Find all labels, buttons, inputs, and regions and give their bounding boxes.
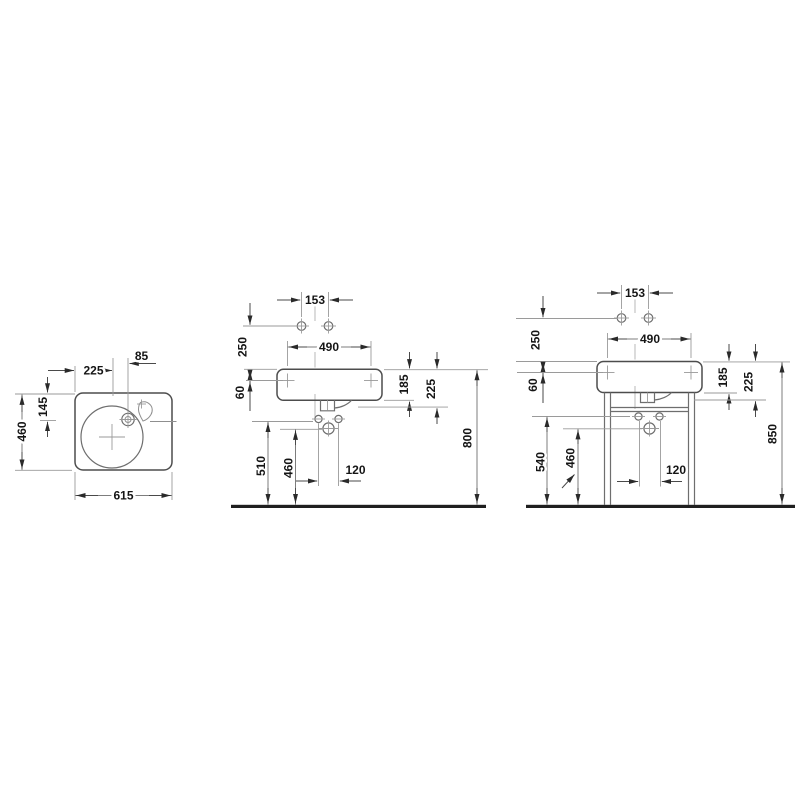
sink-body-outline [597,362,702,393]
dim-label-bolt-span: 120 [345,463,365,477]
dim-label-rim-height: 850 [766,424,780,444]
dim-label-drain-depth: 225 [742,372,756,392]
drawing-page: 225 85 145 460 615 [0,0,800,800]
dim-label-width: 615 [113,489,133,503]
dim-label-offset-faucet: 85 [135,349,149,363]
dim-label-outlet-height: 540 [534,452,548,472]
front-view-with-stand: 153 250 60 490 185 225 540 460 120 850 [516,285,795,508]
dim-label-tap-span: 153 [625,286,645,300]
sink-body-outline [277,369,382,400]
dim-label-bolt-span: 120 [666,463,686,477]
top-view: 225 85 145 460 615 [15,349,177,503]
dim-label-offset-center: 225 [83,364,103,378]
mounting-holes [312,415,345,436]
dim-label-rim-height: 800 [461,428,475,448]
dim-label-fixing-drop: 60 [233,386,247,400]
dim-label-fixing-span: 490 [319,340,339,354]
trap-curve [335,400,352,408]
adjustability-arrow [562,475,575,489]
dim-label-tap-height: 250 [529,330,543,350]
dim-label-depth: 460 [15,421,29,441]
ground-line [231,505,486,508]
fixing-hole-crosses [601,366,699,380]
dim-label-outlet-height: 510 [254,456,268,476]
dim-label-fixing-drop: 60 [526,378,540,392]
metal-console-stand [605,393,695,505]
dim-label-body-height: 185 [397,374,411,394]
dim-label-tap-height: 250 [236,337,250,357]
dim-label-fixing-span: 490 [640,332,660,346]
dim-label-trap-height: 460 [564,448,578,468]
dim-label-trap-height: 460 [282,458,296,478]
dim-label-faucet-depth: 145 [36,397,50,417]
trap-curve [655,393,672,401]
tap-platform-outline [139,402,153,421]
technical-drawing: 225 85 145 460 615 [0,0,800,800]
front-view-wall-mounted: 153 250 60 490 185 225 510 460 120 800 [231,292,488,508]
ground-line [526,505,795,508]
fixing-hole-crosses [281,374,379,388]
dim-label-tap-span: 153 [305,293,325,307]
dim-label-drain-depth: 225 [424,379,438,399]
dim-label-body-height: 185 [716,367,730,387]
